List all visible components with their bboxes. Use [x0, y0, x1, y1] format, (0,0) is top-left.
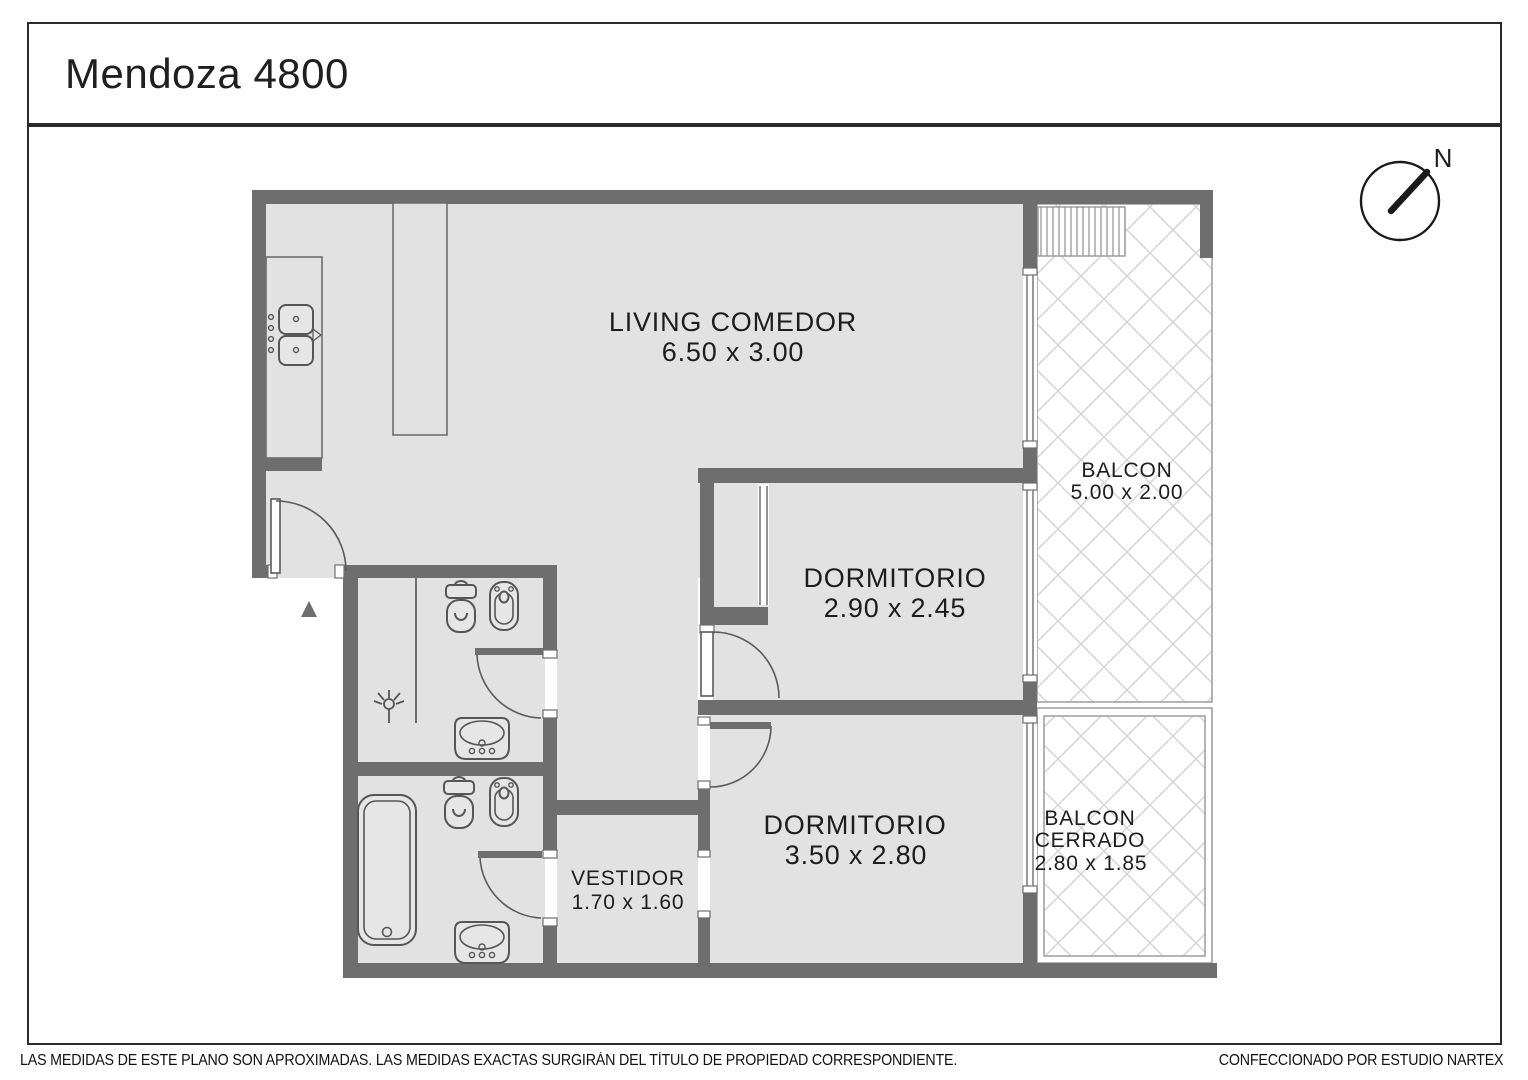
wall	[343, 963, 1217, 978]
footer-credit: CONFECCIONADO POR ESTUDIO NARTEX	[1218, 1052, 1503, 1070]
room-label-balcon-cerrado-2: CERRADO	[1035, 829, 1146, 852]
room-label-dormitorio2: DORMITORIO	[764, 810, 947, 840]
wall	[543, 565, 557, 650]
washbasin-icon	[455, 718, 509, 759]
wall	[1023, 682, 1037, 716]
compass-needle-icon	[1391, 172, 1427, 211]
living-window	[1023, 275, 1037, 441]
wall	[543, 926, 557, 963]
bathroom1-door-leaf	[475, 648, 543, 655]
room-label-dormitorio1: DORMITORIO	[804, 563, 987, 593]
dormitorio2-door-leaf	[710, 722, 771, 729]
room-dims-living: 6.50 x 3.00	[662, 337, 804, 367]
bathroom2-door-leaf	[478, 851, 542, 858]
entry-arrow-icon	[301, 601, 317, 617]
room-label-balcon: BALCON	[1081, 459, 1172, 482]
compass-icon: N	[1361, 143, 1452, 240]
wall	[1023, 448, 1037, 483]
room-label-balcon-cerrado-1: BALCON	[1044, 807, 1135, 830]
wall	[252, 565, 270, 578]
room-dims-vestidor: 1.70 x 1.60	[572, 891, 685, 914]
wall	[343, 762, 557, 776]
wall	[698, 918, 710, 963]
room-label-living: LIVING COMEDOR	[609, 307, 857, 337]
kitchen-island	[393, 203, 447, 435]
wall	[700, 607, 768, 625]
bathtub-icon	[358, 795, 416, 945]
room-dims-dormitorio1: 2.90 x 2.45	[824, 593, 966, 623]
wall	[698, 700, 1023, 715]
wall	[252, 190, 266, 578]
balcon-floor	[1037, 204, 1212, 702]
toilet-icon	[444, 777, 474, 828]
balcon-louver-icon	[1038, 207, 1125, 256]
floorplan-page: Mendoza 4800	[0, 0, 1528, 1080]
entrance-door-leaf	[271, 499, 280, 573]
room-dims-balcon: 5.00 x 2.00	[1071, 481, 1184, 504]
north-label: N	[1434, 143, 1453, 173]
room-dims-balcon-cerrado: 2.80 x 1.85	[1035, 852, 1148, 875]
bidet-icon	[490, 582, 518, 630]
dormitorio1-door-leaf	[701, 632, 713, 696]
wall	[698, 468, 1023, 483]
wall	[266, 457, 322, 471]
floorplan-drawing: N LIVING COMEDOR 6.50 x 3.00 DORMITORIO …	[0, 0, 1528, 1080]
room-dims-dormitorio2: 3.50 x 2.80	[785, 840, 927, 870]
wall	[543, 718, 557, 850]
wall	[1200, 204, 1213, 258]
footer-disclaimer: LAS MEDIDAS DE ESTE PLANO SON APROXIMADA…	[20, 1052, 957, 1070]
wall	[700, 483, 714, 625]
dormitorio1-window	[1023, 490, 1037, 675]
toilet-icon	[446, 581, 476, 632]
room-label-vestidor: VESTIDOR	[571, 867, 685, 890]
washbasin-icon	[455, 922, 509, 963]
wall	[557, 800, 710, 815]
wall	[1023, 893, 1037, 963]
wall	[252, 190, 1213, 204]
hall-floor	[557, 578, 698, 815]
wall	[698, 789, 710, 850]
footer: LAS MEDIDAS DE ESTE PLANO SON APROXIMADA…	[0, 1052, 1528, 1074]
wall	[1023, 204, 1037, 268]
wall	[343, 565, 557, 578]
windows	[1023, 275, 1037, 886]
bidet-icon	[490, 778, 518, 826]
